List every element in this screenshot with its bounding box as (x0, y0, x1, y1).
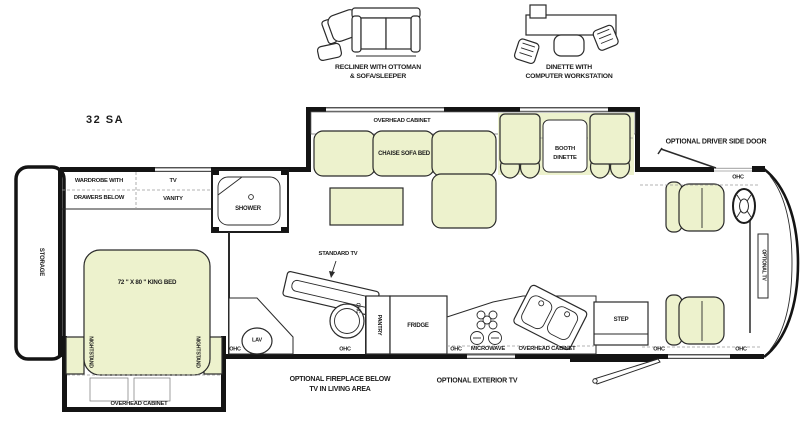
lav-label: LAV (252, 338, 262, 344)
driver-side-door (658, 148, 716, 168)
standard-tv-label: STANDARD TV (319, 252, 358, 258)
floorplan-page: 32 SA RECLINER WITH OTTOMAN & SOFA/SLEEP… (0, 0, 800, 421)
nightstand-right-label: NIGHTSTAND (194, 336, 199, 368)
pantry-label: PANTRY (375, 315, 381, 336)
king-bed (84, 250, 210, 375)
chaise-sofa-label: CHAISE SOFA BED (378, 151, 430, 157)
windshield (750, 169, 798, 357)
living-overhead-cabinet-label: OVERHEAD CABINET (373, 119, 430, 125)
exterior-tv-note: OPTIONAL EXTERIOR TV (437, 378, 518, 385)
bed-overhead-cabinet-label: OVERHEAD CABINET (110, 402, 167, 408)
kitchen (366, 284, 648, 354)
fridge-label: FRIDGE (407, 323, 428, 329)
driver-door-note: OPTIONAL DRIVER SIDE DOOR (666, 139, 767, 146)
bath-ohc-side-label: OHC (355, 303, 360, 314)
steering-wheel (733, 189, 755, 223)
fireplace-note: OPTIONAL FIREPLACE BELOW TV IN LIVING AR… (290, 375, 391, 394)
driver-seat (666, 182, 724, 232)
booth-dinette-label: BOOTH DINETTE (553, 145, 576, 162)
nightstand-left-box (66, 337, 84, 374)
shower-label: SHOWER (235, 206, 261, 212)
step-label: STEP (614, 317, 629, 323)
passenger-seat (666, 295, 724, 345)
vanity-label: VANITY (163, 197, 183, 203)
bath-ohc-bottom-label: OHC (339, 347, 351, 353)
cockpit-ohc-bottom-left-label: OHC (653, 347, 665, 353)
nightstand-left-label: NIGHTSTAND (87, 336, 92, 368)
storage-label: STORAGE (38, 248, 44, 276)
optional-tv-label: OPTIONAL TV (761, 249, 766, 280)
recliner-option-label: RECLINER WITH OTTOMAN & SOFA/SLEEPER (335, 63, 421, 81)
dinette-option-label: DINETTE WITH COMPUTER WORKSTATION (525, 63, 612, 81)
cockpit-ohc-top-label: OHC (732, 175, 744, 181)
kitchen-ohc-label: OHC (450, 347, 462, 353)
cockpit-ohc-bottom-right-label: OHC (735, 347, 747, 353)
coffee-table (330, 188, 403, 225)
shower (212, 170, 288, 232)
computer-workstation-icon (514, 5, 620, 64)
entry-step (594, 302, 648, 345)
model-name: 32 SA (86, 114, 124, 126)
kitchen-overhead-cabinet-label: OVERHEAD CABINET (518, 347, 575, 353)
microwave-label: MICROWAVE (471, 347, 505, 353)
wardrobe-label-2: DRAWERS BELOW (74, 196, 124, 202)
bath-ohc-lav-label: OHC (229, 347, 241, 353)
recliner-sofa-icon (317, 6, 420, 61)
wardrobe-label-1: WARDROBE WITH (75, 179, 123, 185)
entry-door (593, 359, 660, 384)
king-bed-label: 72 " X 80 " KING BED (118, 280, 177, 286)
tv-label: TV (169, 179, 176, 185)
